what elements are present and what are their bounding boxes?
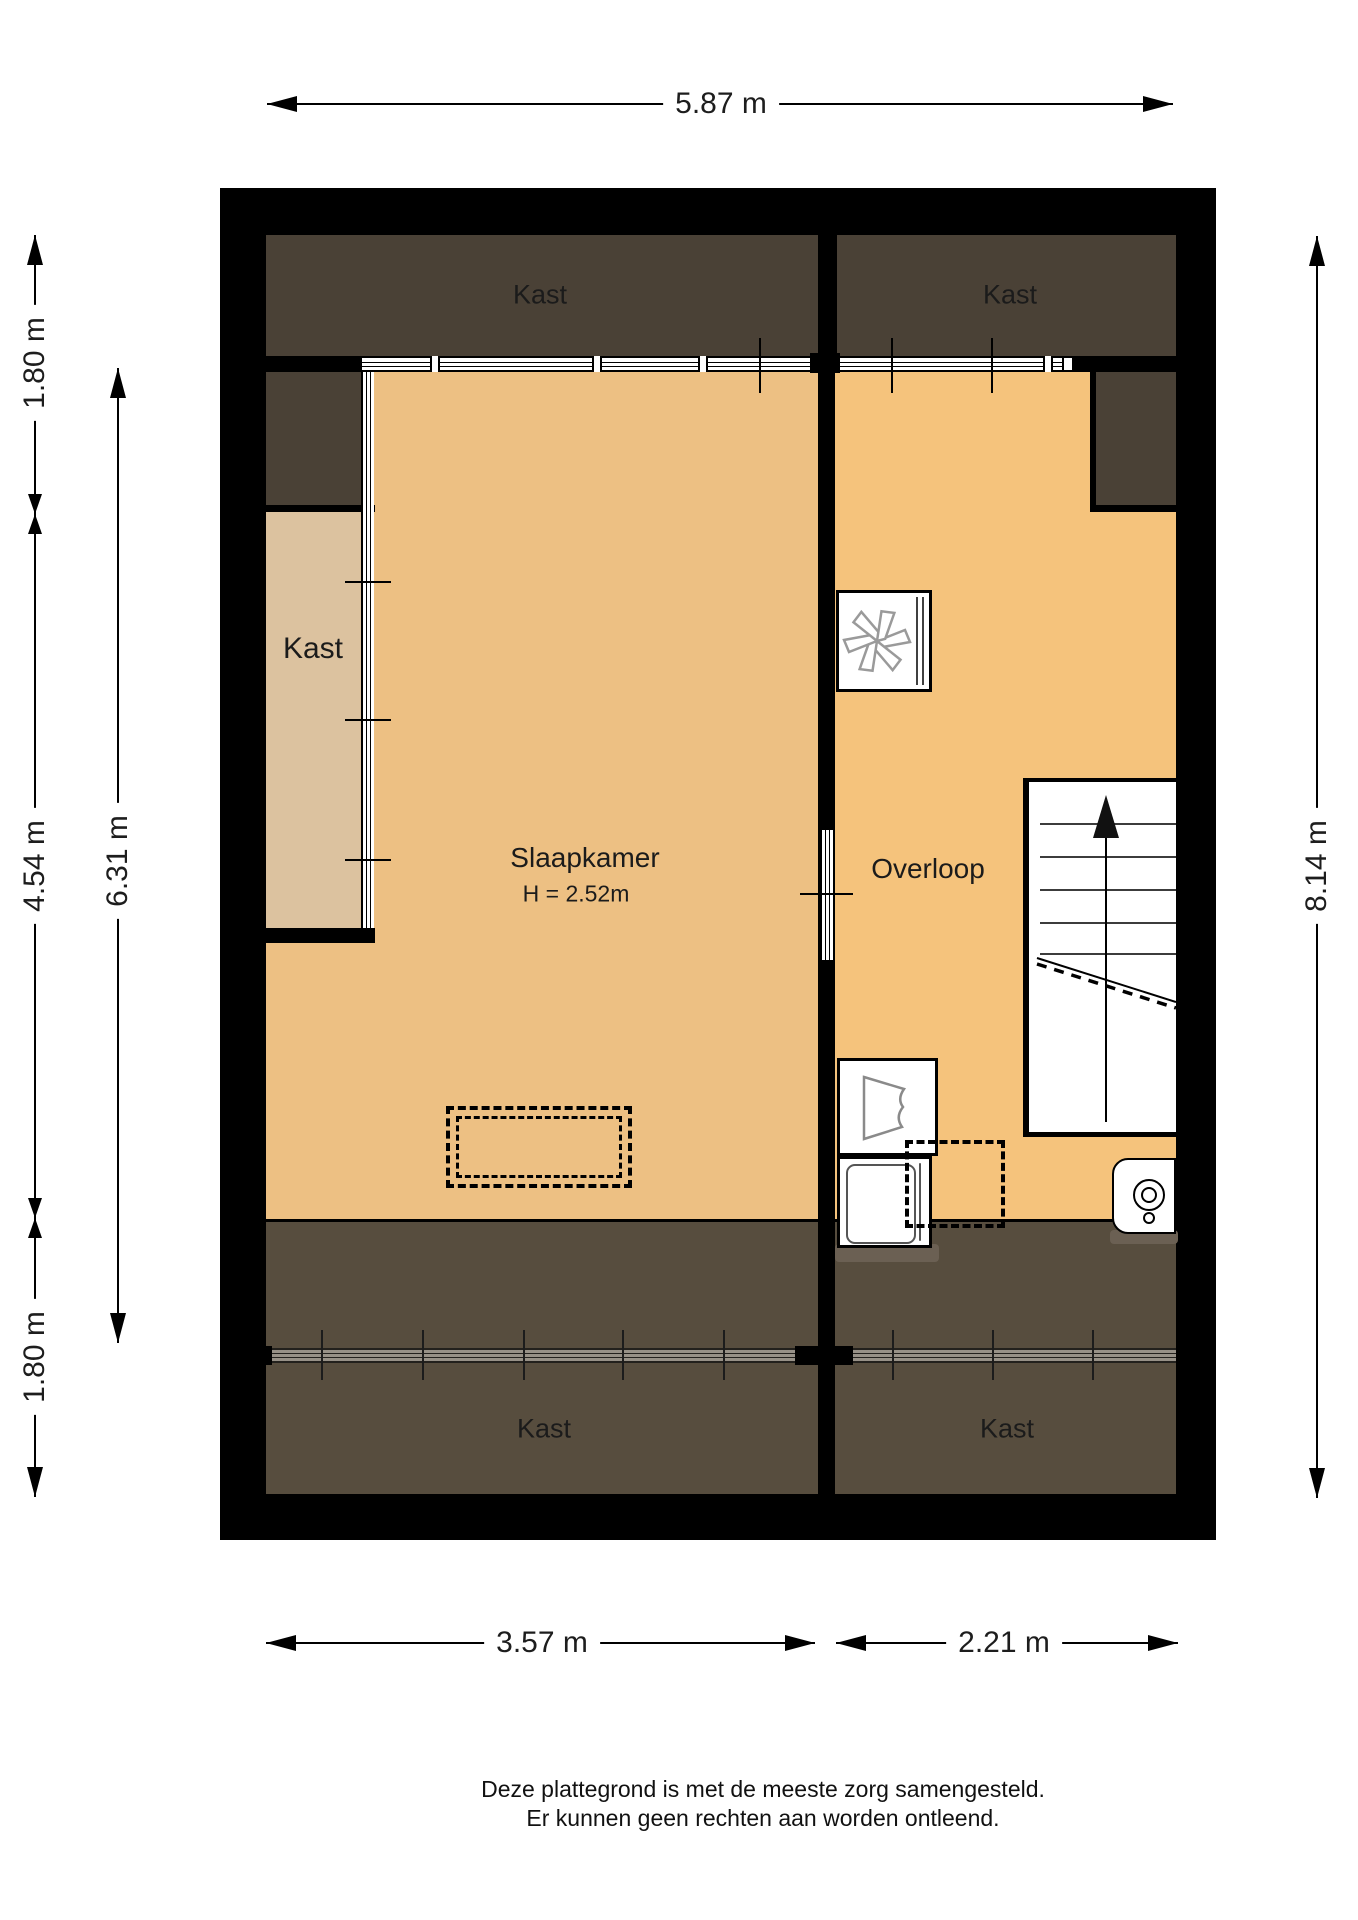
- room-label-kast-top-right: Kast: [983, 280, 1037, 311]
- dim-arrow: [1143, 96, 1173, 112]
- window-mullion: [1043, 356, 1053, 372]
- disclaimer-line-1: Deze plattegrond is met de meeste zorg s…: [481, 1775, 1045, 1804]
- dim-label-bottom-left: 3.57 m: [484, 1626, 600, 1660]
- top-band-stub-right: [1074, 356, 1092, 372]
- dim-arrow: [836, 1635, 866, 1651]
- dim-arrow: [110, 1313, 126, 1343]
- overloop-top-window: [840, 356, 1062, 372]
- room-label-overloop: Overloop: [871, 853, 985, 885]
- glass-tick: [345, 859, 391, 861]
- dim-arrow: [27, 1467, 43, 1497]
- skylight-dashed-inner: [456, 1116, 622, 1178]
- notch-bottom-line: [1090, 505, 1176, 512]
- dim-arrow: [27, 235, 43, 265]
- bottom-window-stub: [258, 1346, 272, 1365]
- small-dashed-outline: [905, 1140, 1005, 1228]
- left-corner-bottom-line: [258, 505, 375, 512]
- room-label-kast-bottom-left: Kast: [517, 1414, 571, 1445]
- floorplan-canvas: Kast Kast Kast Slaapkamer H = 2.52m Over…: [0, 0, 1358, 1920]
- dim-label-left-top: 1.80 m: [18, 305, 52, 421]
- window-tick: [422, 1330, 424, 1380]
- window-mullion: [698, 356, 708, 372]
- dim-arrow: [266, 1635, 296, 1651]
- room-label-kast-left: Kast: [283, 632, 343, 666]
- window-tick: [723, 1330, 725, 1380]
- window-tick: [892, 1330, 894, 1380]
- window-tick: [1092, 1330, 1094, 1380]
- dim-label-top-width: 5.87 m: [663, 87, 779, 121]
- low-roof-notch-right: [1092, 372, 1176, 512]
- dim-arrow: [267, 96, 297, 112]
- middle-wall-top: [818, 235, 837, 356]
- window-end-post: [1062, 356, 1074, 372]
- boiler-unit: [1112, 1158, 1176, 1234]
- room-height-note: H = 2.52m: [523, 881, 630, 908]
- window-junction-bottom: [795, 1346, 853, 1365]
- ventilation-unit-box: [836, 590, 932, 692]
- dim-arrow: [1148, 1635, 1178, 1651]
- dim-break: [28, 494, 42, 514]
- window-tick: [321, 1330, 323, 1380]
- boiler-icon-inner: [1141, 1187, 1157, 1203]
- left-closet-glass-wall: [361, 372, 374, 928]
- top-band-stub-left: [266, 356, 362, 372]
- dim-arrow: [1309, 1468, 1325, 1498]
- stairs-up-arrow-icon: [1093, 795, 1119, 838]
- disclaimer: Deze plattegrond is met de meeste zorg s…: [481, 1775, 1045, 1833]
- dim-arrow: [1309, 236, 1325, 266]
- dim-label-left-inner: 6.31 m: [101, 803, 135, 919]
- window-tick: [992, 1330, 994, 1380]
- dim-arrow: [785, 1635, 815, 1651]
- glass-tick: [345, 581, 391, 583]
- left-closet-end-wall: [255, 928, 375, 943]
- stairs-direction-line: [1105, 838, 1107, 1122]
- glass-tick: [800, 893, 853, 895]
- glass-tick: [345, 719, 391, 721]
- dim-break: [28, 514, 42, 534]
- window-tick: [991, 338, 993, 393]
- window-tick: [523, 1330, 525, 1380]
- dim-label-left-middle: 4.54 m: [18, 808, 52, 924]
- window-mullion: [430, 356, 440, 372]
- dim-label-right-height: 8.14 m: [1300, 808, 1334, 924]
- dim-break: [28, 1198, 42, 1218]
- middle-wall-glass: [820, 830, 833, 960]
- room-label-kast-bottom-right: Kast: [980, 1414, 1034, 1445]
- window-mullion: [592, 356, 602, 372]
- dim-arrow: [110, 368, 126, 398]
- middle-wall-upper: [818, 372, 835, 830]
- boiler-icon-small: [1143, 1212, 1155, 1224]
- dim-break: [28, 1218, 42, 1238]
- window-junction-top: [810, 353, 840, 373]
- floor-break-line: [266, 1219, 1176, 1222]
- window-tick: [891, 338, 893, 393]
- window-tick: [759, 338, 761, 393]
- bottom-roof-window: [266, 1348, 1176, 1363]
- notch-left-line: [1090, 365, 1096, 512]
- middle-wall-lower: [818, 960, 835, 1494]
- room-label-kast-top-left: Kast: [513, 280, 567, 311]
- window-tick: [622, 1330, 624, 1380]
- dim-label-left-bottom: 1.80 m: [18, 1299, 52, 1415]
- room-label-slaapkamer: Slaapkamer: [510, 842, 659, 874]
- dim-label-bottom-right: 2.21 m: [946, 1626, 1062, 1660]
- disclaimer-line-2: Er kunnen geen rechten aan worden ontlee…: [481, 1804, 1045, 1833]
- low-roof-corner-left: [266, 372, 361, 512]
- ventilation-fan-icon: [839, 593, 929, 689]
